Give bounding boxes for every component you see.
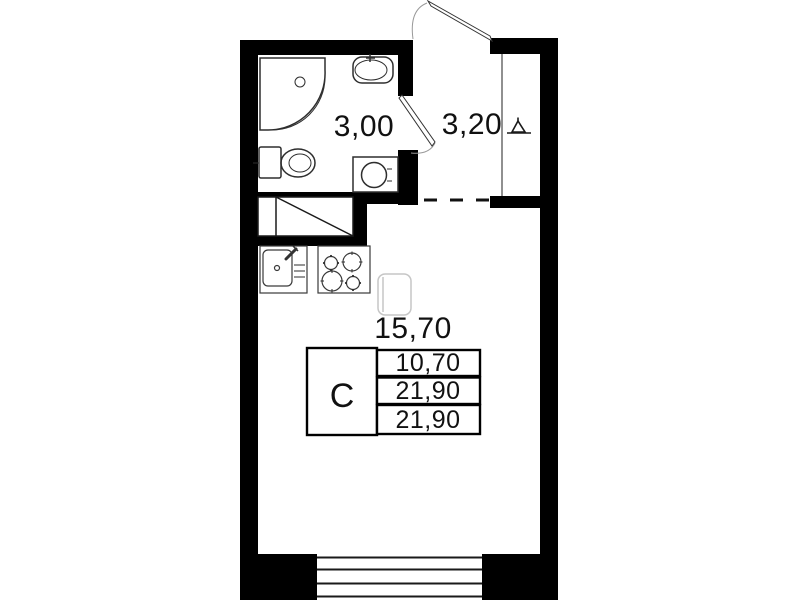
burner-dot <box>359 282 361 284</box>
coat-hanger-icon <box>507 118 531 134</box>
hanger-triangle <box>512 121 525 132</box>
toilet-icon <box>253 147 315 178</box>
burner-top-right <box>343 253 361 271</box>
burner-bottom-right <box>347 277 360 290</box>
area-summary-table: С 10,70 21,90 21,90 <box>307 348 480 435</box>
burner-dot <box>323 262 325 264</box>
living-area-label: 15,70 <box>374 312 452 345</box>
floor-plan: 3,00 3,20 <box>0 0 799 600</box>
room-bathroom: 3,00 <box>253 54 398 192</box>
wall-right <box>540 38 558 600</box>
bathroom-door <box>399 95 435 153</box>
wall-closet-right <box>353 196 367 246</box>
bathroom-sink-icon <box>353 54 393 83</box>
burner-bottom-left <box>322 271 342 291</box>
burner-dot <box>345 282 347 284</box>
hallway-area-label: 3,20 <box>442 108 502 141</box>
burner-dot <box>330 255 332 257</box>
entrance-door <box>412 1 492 41</box>
kitchen-sink-icon <box>260 246 307 293</box>
shower-tray <box>260 58 325 130</box>
burner-dot <box>337 262 339 264</box>
unit-type-label: С <box>330 377 355 415</box>
toilet-bowl <box>281 149 315 177</box>
sink-bowl <box>355 60 387 80</box>
wall-top-left <box>240 40 413 55</box>
kitchen-sink-drain <box>275 266 280 271</box>
floor-plan-page: 3,00 3,20 <box>0 0 799 600</box>
wall-left <box>240 40 258 600</box>
toilet-bowl-inner <box>289 154 311 172</box>
wall-bottom-left <box>240 554 317 600</box>
burner-top-left <box>325 257 338 270</box>
washing-machine-icon <box>353 157 398 192</box>
burner-dot <box>352 289 354 291</box>
wardrobe-outline <box>258 197 353 236</box>
bathroom-door-leaf <box>399 95 435 146</box>
washer-drum <box>362 163 387 188</box>
burner-dot <box>352 275 354 277</box>
wall-bottom-right <box>482 554 558 600</box>
wall-closet-bottom <box>253 236 367 246</box>
stove-icon <box>318 246 370 293</box>
bathroom-area-label: 3,00 <box>334 110 394 143</box>
stove-body <box>318 246 370 293</box>
wall-hall-bottom-stub <box>490 196 540 208</box>
shower-drain <box>295 77 305 87</box>
room-hallway: 3,20 <box>424 54 531 200</box>
table-value-total: 21,90 <box>395 377 460 405</box>
fridge-icon <box>378 274 411 315</box>
table-value-living: 10,70 <box>395 349 460 377</box>
toilet-tank <box>259 147 281 178</box>
entrance-door-swing-arc <box>412 3 427 39</box>
entrance-door-leaf <box>428 1 492 41</box>
shower-icon <box>260 58 325 130</box>
wardrobe-icon <box>258 197 353 236</box>
window-bottom <box>317 558 482 597</box>
wall-bath-right-upper <box>398 54 413 96</box>
table-value-overall: 21,90 <box>395 406 460 434</box>
